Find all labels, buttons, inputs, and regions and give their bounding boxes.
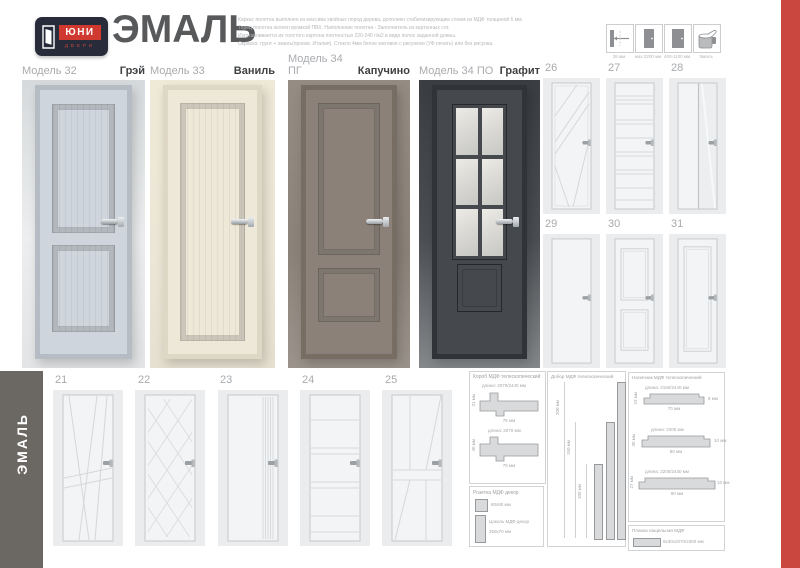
- thumb-number-30: 30: [608, 218, 620, 230]
- door-thumb-31: [669, 234, 726, 368]
- tech-box-planka: Планка нащельная МДФ 8х30х2070/2300 мм: [628, 525, 725, 551]
- nalichnik-side-1: 8 мм: [708, 396, 718, 401]
- door-thumb-23: [218, 390, 288, 546]
- door-height-icon: [635, 24, 663, 53]
- door-thumb-21: [53, 390, 123, 546]
- nalichnik-side-2: 10 мм: [714, 438, 726, 443]
- rozetka-title: Розетка МДФ декор: [473, 490, 519, 496]
- dobor-size-150: 150 мм: [566, 440, 571, 455]
- color-name: Графит: [500, 65, 540, 77]
- thumb-number-21: 21: [55, 374, 67, 386]
- dobor-title: Добор МДФ телескопический: [551, 374, 613, 379]
- door-image-model-33: [163, 85, 262, 359]
- door-label-model-34pg: Модель 34 ПГ Капучино: [288, 62, 410, 77]
- tech-box-korob: Короб МДФ телескопический длина: 2070/24…: [469, 371, 546, 484]
- door-image-model-34po: [432, 85, 527, 359]
- korob-depth-1: 31 мм: [471, 394, 476, 406]
- door-panel: [457, 264, 502, 312]
- door-label-model-34po: Модель 34 ПО Графит: [419, 62, 540, 77]
- description-line: Изготавливается из толстого картона плот…: [238, 32, 540, 40]
- door-leaf: [40, 90, 127, 354]
- door-glass-grid: [452, 104, 507, 260]
- thumb-number-31: 31: [671, 218, 683, 230]
- door-label-model-33: Модель 33 Ваниль: [150, 62, 275, 77]
- description-line: Каркас полотна выполнен из массива хвойн…: [238, 16, 540, 24]
- planka-diagram: [633, 538, 661, 547]
- page-title: ЭМАЛЬ: [112, 8, 256, 52]
- nalichnik-profile-diagram: [641, 435, 711, 448]
- door-thickness-caption: 38 мм: [604, 54, 634, 59]
- product-description: Каркас полотна выполнен из массива хвойн…: [238, 16, 540, 48]
- model-name: Модель 33: [150, 65, 205, 77]
- door-thumb-25: [382, 390, 452, 546]
- model-name: Модель 34 ПГ: [288, 53, 358, 77]
- nalichnik-width-1: 70 мм: [643, 406, 705, 411]
- door-label-model-32: Модель 32 Грэй: [22, 62, 145, 77]
- korob-title: Короб МДФ телескопический: [473, 374, 540, 380]
- thumb-number-25: 25: [385, 374, 397, 386]
- tech-box-decor: Розетка МДФ декор 80х80 мм Цоколь МДФ де…: [469, 486, 544, 547]
- enamel-paint-icon: [693, 24, 721, 53]
- dobor-dim-line: [564, 382, 565, 538]
- tsokol-size: 250х70 мм: [489, 529, 511, 534]
- rozetka-size: 80х80 мм: [491, 502, 511, 507]
- door-handle: [229, 217, 254, 227]
- door-leaf: [437, 90, 522, 354]
- section-sidebar-label: ЭМАЛЬ: [14, 413, 30, 475]
- nalichnik-length-3: длина: 2200/2440 мм: [645, 469, 689, 474]
- thumb-number-26: 26: [545, 62, 557, 74]
- planka-title: Планка нащельная МДФ: [632, 528, 685, 533]
- dobor-strip-200: [617, 382, 626, 540]
- door-photo-model-34po: [419, 80, 540, 368]
- door-panel: [318, 268, 380, 322]
- color-name: Ваниль: [234, 65, 275, 77]
- door-handle: [494, 217, 519, 227]
- nalichnik-length-1: длина: 2150/2440 мм: [645, 385, 689, 390]
- dobor-strip-100: [594, 464, 603, 540]
- thumb-number-23: 23: [220, 374, 232, 386]
- door-thumb-22: [135, 390, 205, 546]
- door-leaf: [168, 90, 257, 354]
- brand-subtitle: ДВЕРИ: [59, 43, 101, 48]
- thumb-number-22: 22: [138, 374, 150, 386]
- section-sidebar: ЭМАЛЬ: [0, 371, 43, 568]
- korob-length-2: длина: 2070 мм: [488, 428, 521, 433]
- enamel-paint-caption: Эмаль: [691, 54, 721, 59]
- korob-length-1: длина: 2070/2440 мм: [482, 383, 526, 388]
- brand-logo: ЮНИ ДВЕРИ: [35, 17, 108, 56]
- dobor-strip-150: [606, 422, 615, 540]
- door-thumb-30: [606, 234, 663, 368]
- description-line: Торец полотна оклеен кромкой ПВХ. Наполн…: [238, 24, 540, 32]
- nalichnik-width-3: 90 мм: [638, 491, 716, 496]
- nalichnik-length-2: длина: 2200 мм: [651, 427, 684, 432]
- tsokol-title: Цоколь МДФ декор: [489, 519, 529, 524]
- description-line: Окраска: грунт + эмаль(произв. Италия). …: [238, 40, 540, 48]
- korob-profile-diagram: [478, 391, 540, 417]
- korob-depth-2: 40 мм: [471, 439, 476, 451]
- rozetka-diagram: [475, 499, 488, 512]
- dobor-size-200: 200 мм: [555, 400, 560, 415]
- nalichnik-side-3: 10 мм: [717, 480, 729, 485]
- door-image-model-32: [35, 85, 132, 359]
- door-photo-model-32: [22, 80, 145, 368]
- thumb-number-27: 27: [608, 62, 620, 74]
- nalichnik-width-2: 80 мм: [641, 449, 711, 454]
- korob-width-2: 75 мм: [478, 463, 540, 468]
- door-width-caption: 400-1100 мм: [662, 54, 692, 59]
- open-door-icon: [42, 25, 56, 49]
- door-leaf: [306, 90, 392, 354]
- thumb-number-28: 28: [671, 62, 683, 74]
- color-name: Грэй: [120, 65, 145, 77]
- tech-box-dobor: Добор МДФ телескопический 200 мм 150 мм …: [547, 371, 626, 547]
- brand-name-badge: ЮНИ: [59, 25, 101, 40]
- door-handle: [99, 217, 124, 227]
- red-accent-stripe: [781, 0, 800, 568]
- door-panel: [52, 104, 115, 233]
- door-thickness-icon: [606, 24, 634, 53]
- door-thumb-27: [606, 78, 663, 214]
- door-width-icon: [664, 24, 692, 53]
- door-thumb-28: [669, 78, 726, 214]
- dobor-size-100: 100 мм: [577, 484, 582, 499]
- nalichnik-title: Наличник МДФ телескопический: [632, 375, 702, 380]
- door-thumb-24: [300, 390, 370, 546]
- brand-name: ЮНИ: [65, 27, 94, 38]
- nalichnik-profile-diagram: [638, 477, 716, 490]
- tsokol-diagram: [475, 515, 486, 543]
- color-name: Капучино: [358, 65, 410, 77]
- model-name: Модель 32: [22, 65, 77, 77]
- nalichnik-depth-3: 27 мм: [629, 476, 634, 488]
- korob-profile-diagram: [478, 436, 540, 462]
- korob-width-1: 75 мм: [478, 418, 540, 423]
- dobor-dim-line: [575, 422, 576, 538]
- door-panel: [318, 103, 380, 255]
- catalog-page: ЮНИ ДВЕРИ ЭМАЛЬ Каркас полотна выполнен …: [0, 0, 800, 568]
- thumb-number-29: 29: [545, 218, 557, 230]
- thumb-number-24: 24: [302, 374, 314, 386]
- door-thumb-26: [543, 78, 600, 214]
- model-name: Модель 34 ПО: [419, 65, 493, 77]
- door-photo-model-33: [150, 80, 275, 368]
- door-handle: [364, 217, 389, 227]
- nalichnik-depth-1: 23 мм: [633, 392, 638, 404]
- door-height-caption: мах 2200 мм: [633, 54, 663, 59]
- door-image-model-34pg: [301, 85, 397, 359]
- door-thumb-29: [543, 234, 600, 368]
- nalichnik-depth-2: 30 мм: [631, 434, 636, 446]
- dobor-dim-line: [586, 464, 587, 538]
- door-panel: [52, 245, 115, 332]
- nalichnik-profile-diagram: [643, 393, 705, 405]
- planka-size: 8х30х2070/2300 мм: [663, 539, 704, 544]
- door-photo-model-34pg: [288, 80, 410, 368]
- tech-box-nalichnik: Наличник МДФ телескопический длина: 2150…: [628, 372, 725, 522]
